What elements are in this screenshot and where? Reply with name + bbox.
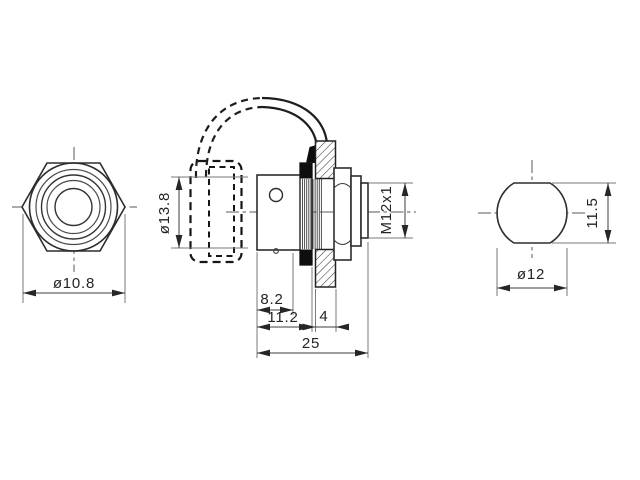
gasket-band-top [300, 163, 312, 179]
label-4: 4 [319, 308, 328, 325]
technical-drawing-page: ø10.8 [0, 0, 640, 480]
connector-technical-drawing: ø10.8 [0, 0, 640, 480]
end-diameter-label: ø12 [517, 266, 545, 283]
end-view: 11.5 ø12 [478, 160, 616, 296]
label-25: 25 [302, 335, 320, 352]
front-view: ø10.8 [12, 147, 137, 303]
mounting-panel-top [316, 141, 336, 179]
coupling-end [361, 183, 368, 238]
hex-nut-outline [22, 163, 125, 251]
label-8-2: 8.2 [260, 291, 283, 308]
gasket-band-bottom [300, 250, 312, 266]
bail-strap-inner-right [262, 107, 317, 155]
cap-diameter-label: ø13.8 [156, 192, 173, 234]
bail-strap-outer-left [196, 98, 262, 178]
thread-label: M12x1 [378, 185, 395, 234]
front-diameter-label: ø10.8 [53, 275, 95, 292]
dimension-thread-spec: M12x1 [369, 183, 413, 238]
mounting-panel-bottom [316, 250, 336, 288]
hex-nut-side [334, 168, 351, 260]
height-label: 11.5 [584, 197, 601, 228]
side-view: ø13.8 M12x1 8.2 11.2 4 25 [156, 98, 416, 358]
step-ring [351, 176, 361, 246]
connector-body [257, 175, 301, 250]
label-11-2: 11.2 [267, 309, 298, 326]
coupling-end-face [497, 183, 567, 243]
